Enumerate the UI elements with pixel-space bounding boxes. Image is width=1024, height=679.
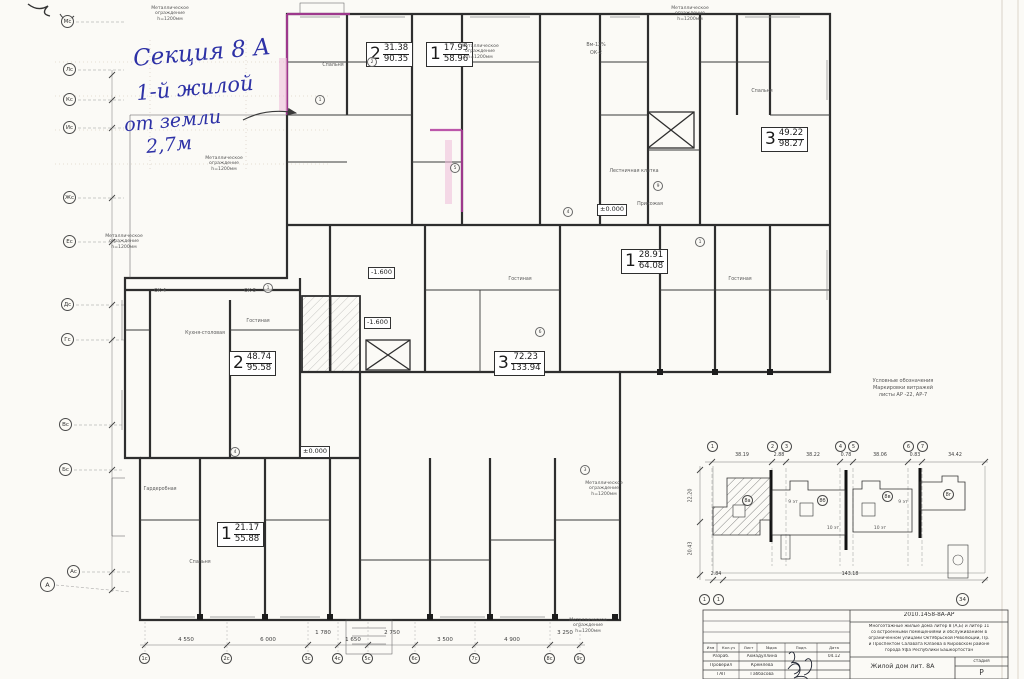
- axis-label: Ас: [70, 569, 77, 575]
- left-axis-bubble: Кс: [63, 93, 76, 106]
- marker-value: 1: [319, 98, 322, 103]
- bottom-axis-bubble: 1с: [139, 653, 150, 664]
- fence-note: Металлическоеограждениеh=1200мм: [192, 156, 256, 172]
- apartment-total-area: 98.27: [778, 140, 804, 150]
- room-label: Кухня-столовая: [185, 331, 225, 336]
- axis-label: Жс: [65, 195, 74, 201]
- apartment-label: 2 48.7495.58: [229, 351, 276, 376]
- keyplan-dimension: 38.22: [806, 453, 820, 458]
- axis-label: 1: [717, 597, 720, 603]
- window-mark: ОК-5: [244, 289, 256, 294]
- keyplan-dimension: 2.84: [711, 572, 722, 577]
- keyplan-axis-bubble: 4: [835, 441, 846, 452]
- axis-label: Дс: [64, 302, 71, 308]
- left-axis-bubble: Вс: [59, 418, 72, 431]
- axis-label: Бс: [62, 467, 69, 473]
- axis-label: 2: [771, 444, 774, 450]
- marker-value: 3: [584, 468, 587, 473]
- bottom-axis-bubble: 6с: [409, 653, 420, 664]
- room-label: Гостиная: [246, 319, 269, 324]
- dimension-label: 1 650: [345, 637, 361, 643]
- building-floors: 9 эт: [898, 500, 907, 505]
- room-label: Спальня: [189, 560, 210, 565]
- detail-marker: 4: [563, 207, 573, 217]
- apartment-label: 1 21.1755.88: [217, 522, 264, 547]
- keyplan-dimension: 38.19: [735, 453, 749, 458]
- fence-note-line: h=1200мм: [138, 17, 202, 22]
- keyplan-dimension: 22.20: [688, 489, 693, 503]
- keyplan-dimension: 0.78: [841, 453, 852, 458]
- keyplan-axis-bubble: 7: [917, 441, 928, 452]
- apartment-room-count: 1: [625, 253, 636, 270]
- level-mark: -1.600: [364, 317, 391, 329]
- building-tag-label: 8в: [884, 494, 890, 500]
- fence-note: Металлическоеограждениеh=1200мм: [138, 6, 202, 22]
- handwritten-annotation-line-4: 2,7м: [145, 132, 193, 158]
- bottom-axis-bubble: 4с: [332, 653, 343, 664]
- left-axis-bubble: А: [40, 577, 55, 592]
- titleblock-row-role: Проверил: [704, 663, 738, 668]
- stair-core: [302, 296, 360, 372]
- keyplan-axis-bubble: 1: [699, 594, 710, 605]
- room-label: Гардеробная: [143, 487, 176, 492]
- apartment-total-area: 95.58: [246, 364, 272, 374]
- legend-line: Условные обозначения: [873, 378, 934, 384]
- apartment-room-count: 2: [233, 355, 244, 372]
- detail-marker: 5: [450, 163, 460, 173]
- building-tag-label: 8а: [744, 498, 750, 504]
- titleblock-stage-label: стадия: [956, 659, 1007, 664]
- marker-value: 1: [699, 240, 702, 245]
- axis-label: 1с: [142, 656, 148, 662]
- fence-note-line: h=1200мм: [572, 492, 636, 497]
- keyplan-linework: [697, 459, 988, 583]
- left-axis-bubble: Жс: [63, 191, 76, 204]
- apartment-total-area: 133.94: [511, 364, 541, 374]
- titleblock-row-date: 04.12: [818, 654, 850, 659]
- left-axis-bubble: Ис: [63, 121, 76, 134]
- apartment-room-count: 3: [765, 131, 776, 148]
- keyplan-axis-bubble: 34: [956, 593, 969, 606]
- detail-marker: 2: [367, 57, 377, 67]
- marker-value: 2: [371, 60, 374, 65]
- axis-label: Ес: [66, 239, 73, 245]
- apartment-total-area: 64.08: [638, 262, 664, 272]
- dimension-label: 2 750: [384, 630, 400, 636]
- bottom-axis-bubble: 7с: [469, 653, 480, 664]
- axis-label: 34: [959, 597, 966, 603]
- fence-note-line: h=1200мм: [448, 55, 512, 60]
- dimension-label: 4 550: [178, 637, 194, 643]
- axis-label: Мс: [64, 19, 72, 25]
- room-label: Прихожая: [637, 202, 663, 207]
- elevator-shafts: [366, 112, 694, 370]
- axis-label: 7с: [472, 656, 478, 662]
- slope-mark: Вм-12%: [586, 43, 605, 48]
- axis-label: Вс: [62, 422, 69, 428]
- keyplan-axis-bubble: 6: [903, 441, 914, 452]
- apartment-areas: 28.9164.08: [638, 251, 664, 271]
- axis-label: 1: [703, 597, 706, 603]
- titleblock-col-header: Лист: [740, 645, 757, 650]
- keyplan-dimension: 20.43: [688, 542, 693, 556]
- apartment-label: 3 72.23133.94: [494, 351, 545, 376]
- fence-note-line: h=1200мм: [658, 17, 722, 22]
- building-tag: 8а: [742, 495, 753, 506]
- keyplan-axis-bubble: 2: [767, 441, 778, 452]
- apartment-areas: 21.1755.88: [234, 524, 260, 544]
- legend-line: листы АР -22, АР-7: [879, 392, 927, 398]
- titleblock-description-line: города Уфа Республики Башкортостан: [851, 648, 1007, 653]
- window-mark: ОК-2: [590, 51, 602, 56]
- left-axis-bubble: Гс: [61, 333, 74, 346]
- left-axis-bubble: Мс: [61, 15, 74, 28]
- axis-label: 7: [921, 444, 924, 450]
- building-tag: 8б: [817, 495, 828, 506]
- apartment-areas: 31.3890.35: [383, 44, 409, 64]
- keyplan-axis-bubble: 5: [848, 441, 859, 452]
- keyplan-axis-bubble: 1: [713, 594, 724, 605]
- left-axis-bubble: Лс: [63, 63, 76, 76]
- titleblock-col-header: №док: [758, 645, 785, 650]
- dimension-label: 3 500: [437, 637, 453, 643]
- marker-value: 5: [454, 166, 457, 171]
- titleblock-row-role: Разраб.: [704, 654, 738, 659]
- detail-marker: 3: [580, 465, 590, 475]
- titleblock-row-name: Кремлева: [740, 663, 784, 668]
- detail-marker: 4: [230, 447, 240, 457]
- fence-note-line: h=1200мм: [556, 629, 620, 634]
- building-tag-label: 8г: [946, 492, 952, 498]
- marker-value: 6: [539, 330, 542, 335]
- titleblock-signatures: [788, 652, 812, 679]
- fence-note: Металлическоеограждениеh=1200мм: [556, 618, 620, 634]
- titleblock-col-header: Изм: [704, 645, 717, 650]
- marker-value: 4: [234, 450, 237, 455]
- keyplan-dimension: 34.42: [948, 453, 962, 458]
- building-tag: 8в: [882, 491, 893, 502]
- apartment-label: 1 28.9164.08: [621, 249, 668, 274]
- apartment-total-area: 55.88: [234, 535, 260, 545]
- apartment-room-count: 3: [498, 355, 509, 372]
- fence-note: Металлическоеограждениеh=1200мм: [448, 44, 512, 60]
- left-axis-bubble: Ас: [67, 565, 80, 578]
- left-axis-bubble: Ес: [63, 235, 76, 248]
- level-mark: ±0.000: [300, 446, 330, 458]
- axis-label: Гс: [64, 337, 70, 343]
- fence-note: Металлическоеограждениеh=1200мм: [92, 234, 156, 250]
- titleblock-stage: Р: [956, 668, 1007, 677]
- axis-label: 6: [907, 444, 910, 450]
- keyplan-dimension: 2.88: [774, 453, 785, 458]
- titleblock-col-header: Дата: [818, 645, 850, 650]
- bottom-axis-bubble: 2с: [221, 653, 232, 664]
- legend-line: Маркировки витражей: [873, 385, 933, 391]
- axis-label: Кс: [66, 97, 73, 103]
- apartment-total-area: 90.35: [383, 55, 409, 65]
- keyplan-axis-bubble: 1: [707, 441, 718, 452]
- window-mark: ОК-4: [154, 289, 166, 294]
- dimension-label: 6 000: [260, 637, 276, 643]
- keyplan-dimension: 0.83: [910, 453, 921, 458]
- axis-label: 1: [711, 444, 714, 450]
- dimension-label: 4 900: [504, 637, 520, 643]
- axis-label: А: [45, 581, 49, 589]
- room-label: Гостиная: [728, 277, 751, 282]
- detail-marker: 1: [315, 95, 325, 105]
- axis-label: 5с: [365, 656, 371, 662]
- fence-note: Металлическоеограждениеh=1200мм: [658, 6, 722, 22]
- titleblock-doc-number: 2010.1458-8А-АР: [851, 612, 1007, 618]
- keyplan-dimension: 38.06: [873, 453, 887, 458]
- level-mark: -1.600: [368, 267, 395, 279]
- detail-marker: 1: [263, 283, 273, 293]
- fence-note: Металлическоеограждениеh=1200мм: [572, 481, 636, 497]
- apartment-areas: 48.7495.58: [246, 353, 272, 373]
- axis-label: 3: [785, 444, 788, 450]
- apartment-areas: 72.23133.94: [511, 353, 541, 373]
- room-label: Гостиная: [508, 277, 531, 282]
- titleblock-col-header: Подп.: [786, 645, 817, 650]
- titleblock-row-name: Ахмадуллина: [740, 654, 784, 659]
- columns: [197, 369, 773, 620]
- left-axis-bubble: Бс: [59, 463, 72, 476]
- titleblock-description-line: и Проспектом Салавата Юлаева в Кировском…: [851, 642, 1007, 647]
- axis-label: Ис: [66, 125, 73, 131]
- level-mark: ±0.000: [597, 204, 627, 216]
- fence-note-line: h=1200мм: [92, 245, 156, 250]
- marker-value: 9: [657, 184, 660, 189]
- detail-marker: 1: [695, 237, 705, 247]
- bottom-axis-bubble: 8с: [544, 653, 555, 664]
- detail-marker: 6: [535, 327, 545, 337]
- titleblock-description-line: со встроенными помещениями и обслуживани…: [851, 630, 1007, 635]
- axis-label: 2с: [224, 656, 230, 662]
- room-label: Лестничная клетка: [609, 169, 658, 174]
- building-floors: 10 эт: [874, 526, 886, 531]
- titleblock-col-header: Кол.уч: [718, 645, 739, 650]
- apartment-room-count: 1: [221, 526, 232, 543]
- axis-label: Лс: [66, 67, 73, 73]
- titleblock-description-line: Многоэтажные жилые дома литер 8 (А,Б) и …: [851, 624, 1007, 629]
- apartment-room-count: 1: [430, 46, 441, 63]
- titleblock-row-role: ГАП: [704, 672, 738, 677]
- marker-value: 1: [267, 286, 270, 291]
- room-label: Спальня: [322, 63, 343, 68]
- axis-label: 6с: [412, 656, 418, 662]
- bottom-axis-bubble: 5с: [362, 653, 373, 664]
- axis-label: 8с: [547, 656, 553, 662]
- bottom-axis-bubble: 3с: [302, 653, 313, 664]
- left-axis-bubble: Дс: [61, 298, 74, 311]
- room-label: Спальня: [751, 89, 772, 94]
- titleblock-row-name: Габбасова: [740, 672, 784, 677]
- apartment-label: 3 49.2298.27: [761, 127, 808, 152]
- bottom-axis-bubble: 9с: [574, 653, 585, 664]
- titleblock-description-line: ограниченном улицами Октябрьской Революц…: [851, 636, 1007, 641]
- detail-marker: 9: [653, 181, 663, 191]
- axis-label: 9с: [577, 656, 583, 662]
- drawing-sheet: Секция 8 А 1-й жилой от земли 2,7м Мс Лс…: [0, 0, 1024, 679]
- marker-value: 4: [567, 210, 570, 215]
- titleblock-subject: Жилой дом лит. 8А: [851, 663, 954, 670]
- building-tag: 8г: [943, 489, 954, 500]
- keyplan-dimension: 143.18: [842, 572, 859, 577]
- keyplan-axis-bubble: 3: [781, 441, 792, 452]
- paper-artifacts: [28, 0, 1018, 679]
- apartment-areas: 49.2298.27: [778, 129, 804, 149]
- building-floors: 10 эт: [827, 526, 839, 531]
- building-floors: 9 эт: [788, 500, 797, 505]
- building-tag-label: 8б: [819, 498, 825, 504]
- axis-label: 4с: [335, 656, 341, 662]
- fence-note-line: h=1200мм: [192, 167, 256, 172]
- axis-label: 4: [839, 444, 842, 450]
- dimension-label: 1 780: [315, 630, 331, 636]
- axis-label: 3с: [305, 656, 311, 662]
- axis-label: 5: [852, 444, 855, 450]
